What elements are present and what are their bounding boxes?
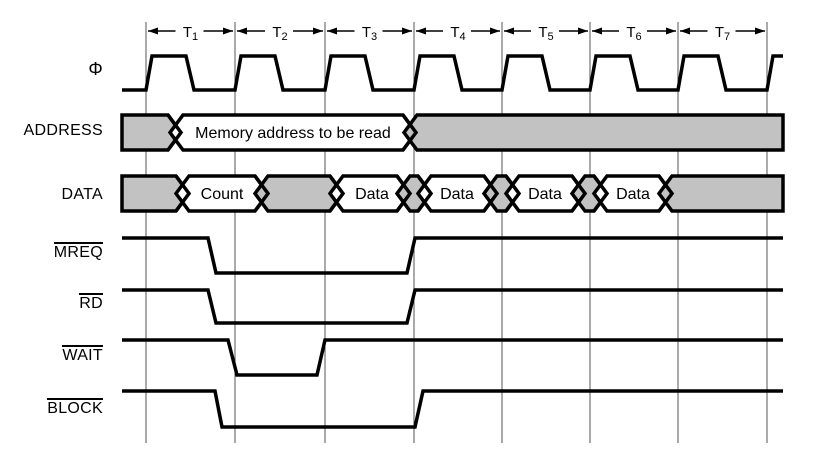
cycle-label-base: T: [183, 24, 192, 41]
right-arrowhead-icon: [313, 28, 323, 35]
cycle-label-subscript: 1: [192, 31, 198, 43]
cycle-label-subscript: 6: [636, 31, 642, 43]
rd-waveform: [122, 290, 783, 323]
data-label-3: Data: [528, 186, 562, 203]
cycle-marker-t3: T3: [327, 24, 412, 43]
signal-label-mreq: MREQ: [0, 242, 103, 261]
cycle-label: T7: [715, 24, 730, 43]
cycle-label-subscript: 3: [371, 31, 377, 43]
block-waveform: [122, 391, 783, 427]
signal-label-block: BLOCK: [0, 398, 103, 417]
cycle-marker-t2: T2: [237, 24, 323, 43]
cycle-marker-t6: T6: [592, 24, 676, 43]
cycle-label: T5: [538, 24, 553, 43]
cycle-label: T1: [183, 24, 198, 43]
right-arrowhead-icon: [490, 28, 500, 35]
cycle-label-base: T: [272, 24, 281, 41]
address-bus-unknown-right: [404, 115, 783, 150]
cycle-label: T6: [626, 24, 641, 43]
right-arrowhead-icon: [223, 28, 233, 35]
data-bus: Count Data Data Data Data: [122, 176, 783, 211]
left-arrowhead-icon: [504, 28, 514, 35]
left-arrowhead-icon: [592, 28, 602, 35]
mreq-text: MREQ: [54, 242, 103, 260]
signal-label-address: ADDRESS: [0, 122, 103, 139]
wait-text: WAIT: [62, 345, 103, 363]
gridlines: [146, 22, 767, 443]
cycle-label-base: T: [538, 24, 547, 41]
cycle-marker-t5: T5: [504, 24, 588, 43]
cycle-label-base: T: [450, 24, 459, 41]
cycle-label-base: T: [715, 24, 724, 41]
rd-text: RD: [79, 293, 103, 311]
data-count-label: Count: [201, 186, 244, 203]
right-arrowhead-icon: [666, 28, 676, 35]
address-valid-label: Memory address to be read: [195, 125, 391, 142]
signal-label-phi: Φ: [0, 61, 103, 78]
right-arrowhead-icon: [402, 28, 412, 35]
address-bus: Memory address to be read: [122, 115, 783, 150]
signal-label-rd: RD: [0, 293, 103, 312]
cycle-label-base: T: [362, 24, 371, 41]
right-arrowhead-icon: [578, 28, 588, 35]
cycle-label: T4: [450, 24, 465, 43]
cycle-label-base: T: [626, 24, 635, 41]
cycle-label-subscript: 7: [724, 31, 730, 43]
cycle-marker-t4: T4: [416, 24, 500, 43]
cycle-markers: T1T2T3T4T5T6T7: [148, 24, 765, 43]
right-arrowhead-icon: [755, 28, 765, 35]
phi-symbol: Φ: [88, 59, 103, 79]
data-bus-unknown-right: [659, 176, 783, 211]
signal-label-wait: WAIT: [0, 345, 103, 364]
signal-label-data: DATA: [0, 186, 103, 203]
data-text: DATA: [62, 186, 104, 203]
cycle-label-subscript: 2: [282, 31, 288, 43]
data-label-1: Data: [355, 186, 389, 203]
left-arrowhead-icon: [327, 28, 337, 35]
timing-diagram: T1T2T3T4T5T6T7 Memory address to be read: [0, 0, 821, 468]
block-text: BLOCK: [47, 398, 103, 416]
left-arrowhead-icon: [237, 28, 247, 35]
left-arrowhead-icon: [680, 28, 690, 35]
data-label-2: Data: [440, 186, 474, 203]
cycle-label-subscript: 5: [548, 31, 554, 43]
cycle-marker-t7: T7: [680, 24, 765, 43]
phi-clock-waveform: [122, 56, 783, 90]
cycle-label-subscript: 4: [460, 31, 466, 43]
cycle-label: T2: [272, 24, 287, 43]
mreq-waveform: [122, 238, 783, 273]
cycle-marker-t1: T1: [148, 24, 233, 43]
address-text: ADDRESS: [24, 122, 103, 139]
left-arrowhead-icon: [416, 28, 426, 35]
data-label-4: Data: [616, 186, 650, 203]
cycle-label: T3: [362, 24, 377, 43]
left-arrowhead-icon: [148, 28, 158, 35]
timing-diagram-canvas: T1T2T3T4T5T6T7 Memory address to be read: [0, 0, 821, 468]
wait-waveform: [122, 340, 783, 375]
